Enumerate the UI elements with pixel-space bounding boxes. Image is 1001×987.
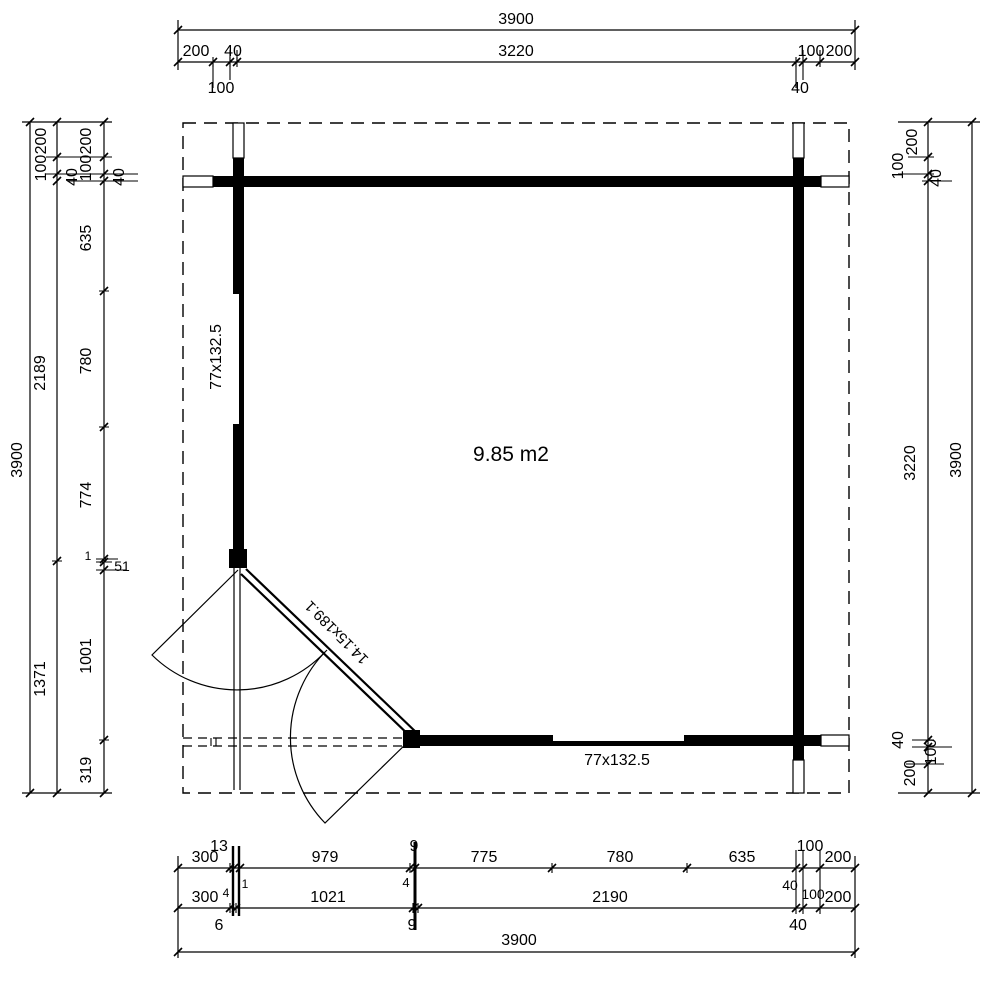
area-label: 9.85 m2 [473, 443, 549, 466]
door-assembly: 14.15x189.1 [152, 569, 419, 823]
dim-bot1-780: 780 [607, 849, 634, 866]
dim-left-mid-200: 200 [33, 128, 50, 155]
right-dimension-block: 200 100 40 3220 40 100 200 3900 [890, 118, 980, 797]
dim-bot2-300: 300 [192, 889, 219, 906]
floor-plan-drawing: 3900 200 40 3220 100 200 100 40 3900 200… [0, 0, 1001, 987]
dim-left-mid-1371: 1371 [32, 661, 49, 697]
window-bottom [553, 735, 684, 741]
window-left-label: 77x132.5 [208, 324, 225, 390]
dim-bot1-775: 775 [471, 849, 498, 866]
dim-mid-1: 1 [242, 877, 249, 891]
dim-mid-100: 100 [801, 886, 825, 902]
dim-top-40-left: 40 [224, 43, 242, 60]
dim-left-in-1: 1 [85, 549, 92, 563]
door-swing-bottom [290, 650, 413, 823]
dim-bot1-979: 979 [312, 849, 339, 866]
dim-bot2-1021: 1021 [310, 889, 346, 906]
dim-bot1-200: 200 [825, 849, 852, 866]
wall-top [213, 176, 821, 187]
dim-bot-40: 40 [789, 917, 807, 934]
dim-top-200-right: 200 [826, 43, 853, 60]
dim-right-100-bottom: 100 [923, 739, 940, 766]
dim-right-40-bottom: 40 [890, 731, 907, 749]
floor-plan-page: 3900 200 40 3220 100 200 100 40 3900 200… [0, 0, 1001, 987]
dim-bot2-200: 200 [825, 889, 852, 906]
dim-left-in-200: 200 [78, 128, 95, 155]
dim-mid-4: 4 [402, 875, 409, 890]
dim-mid-40: 40 [782, 877, 798, 893]
dim-top-200-left: 200 [183, 43, 210, 60]
dim-bot1-100: 100 [797, 838, 824, 855]
log-end-top-left-h [183, 176, 213, 187]
dim-bot-6: 6 [215, 917, 224, 934]
dim-left-in-51: 51 [114, 558, 130, 574]
log-end-bottom-right-v [793, 760, 804, 793]
dim-left-in-319: 319 [78, 757, 95, 784]
left-dimension-block: 3900 200 100 40 2189 1371 200 100 40 635… [9, 118, 138, 797]
windows: 77x132.5 77x132.5 [208, 294, 684, 769]
dim-top-total: 3900 [498, 11, 534, 28]
dim-left-mid-100: 100 [33, 155, 50, 182]
dim-right-200-top: 200 [904, 129, 921, 156]
dim-right-3220: 3220 [902, 445, 919, 481]
window-left [233, 294, 239, 424]
dim-top-3220: 3220 [498, 43, 534, 60]
log-end-bottom-right-h [821, 735, 849, 746]
dim-left-in-774: 774 [78, 482, 95, 509]
dim-mid-4-left: 4 [223, 886, 230, 900]
dim-right-total: 3900 [948, 442, 965, 478]
wall-right [793, 158, 804, 760]
dim-bot1-9: 9 [410, 838, 419, 855]
dim-top-100-below: 100 [208, 80, 235, 97]
top-dimension-block: 3900 200 40 3220 100 200 100 40 [174, 11, 859, 97]
dim-bot1-635: 635 [729, 849, 756, 866]
dim-left-mid-2189: 2189 [32, 355, 49, 391]
dim-left-in-40: 40 [111, 168, 128, 186]
log-end-top-right-h [821, 176, 849, 187]
dim-top-100-right: 100 [798, 43, 825, 60]
dim-left-in-635: 635 [78, 225, 95, 252]
dim-right-40-top: 40 [928, 169, 945, 187]
dim-left-in-100: 100 [78, 155, 95, 182]
dim-right-100-top: 100 [890, 153, 907, 180]
dim-bottom-total: 3900 [501, 932, 537, 949]
dim-top-40-below: 40 [791, 80, 809, 97]
dim-left-in-780: 780 [78, 348, 95, 375]
dim-bot1-13: 13 [210, 838, 228, 855]
dim-bot-9: 9 [408, 917, 417, 934]
dim-left-total: 3900 [9, 442, 26, 478]
door-panel [241, 569, 419, 740]
dim-right-200-bottom: 200 [902, 760, 919, 787]
log-end-top-left-v [233, 123, 244, 158]
bottom-dimension-block: 300 13 979 9 775 780 635 100 200 1 4 4 4… [174, 838, 859, 958]
door-post-top [229, 549, 247, 568]
window-bottom-label: 77x132.5 [584, 752, 650, 769]
dim-left-in-1001: 1001 [78, 638, 95, 674]
log-end-top-right-v [793, 123, 804, 158]
dim-bot2-2190: 2190 [592, 889, 628, 906]
